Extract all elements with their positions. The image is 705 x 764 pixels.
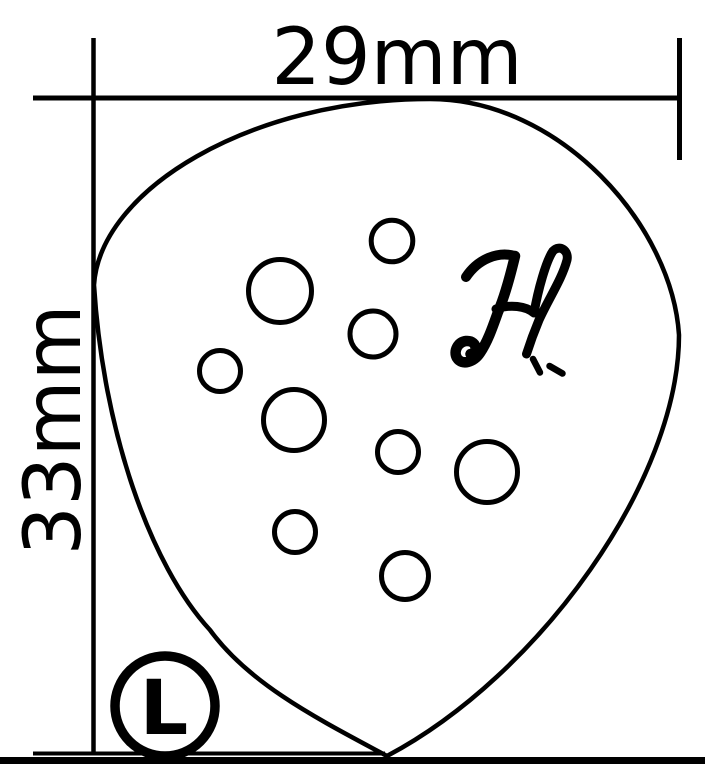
width-dimension-label: 29mm [271,13,522,103]
size-badge-letter: L [140,663,188,752]
pick-drawing-canvas: 29mm 33mm L [0,0,705,764]
guitar-pick-diagram: 29mm 33mm L [0,0,705,764]
bottom-border-bar [0,757,705,764]
height-dimension-label: 33mm [9,304,99,555]
size-badge: L [115,656,215,756]
